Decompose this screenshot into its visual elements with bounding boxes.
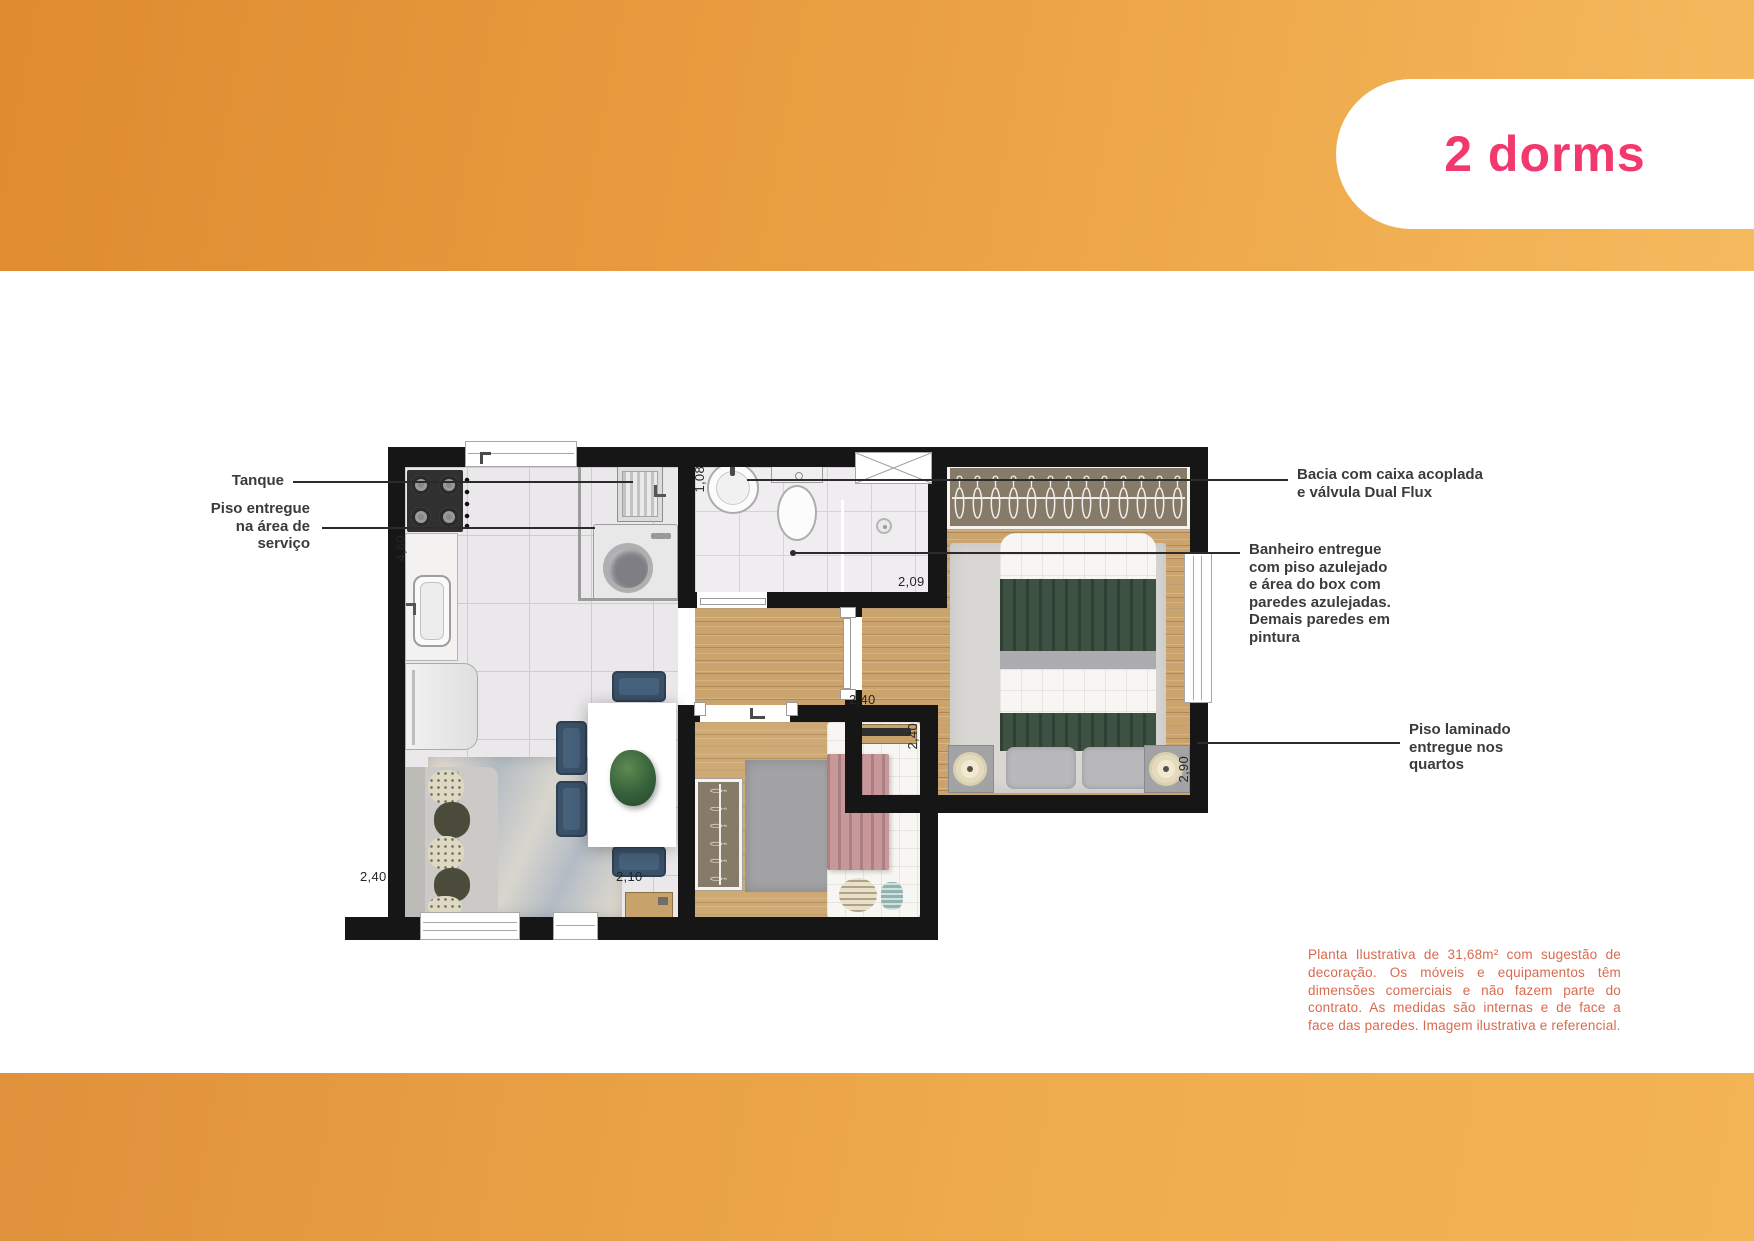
- burner-icon: [411, 475, 431, 495]
- label-line: Tanque: [140, 472, 284, 490]
- service-partition-h: [578, 598, 682, 601]
- kitchen-sink: [413, 575, 451, 647]
- duvet: [1000, 669, 1156, 715]
- window-frame-line: [423, 930, 517, 931]
- master-closet: [947, 465, 1190, 529]
- leader-tanque: [293, 481, 633, 483]
- label-piso-servico: Piso entreguena área deserviço: [128, 500, 310, 553]
- bed-pillow: [839, 878, 877, 912]
- bottom-orange-band: [0, 1073, 1754, 1241]
- laundry-tank: [617, 466, 663, 522]
- label-line: Bacia com caixa acoplada: [1297, 466, 1547, 484]
- kitchen-faucet-icon: [406, 603, 416, 615]
- drain-center: [883, 525, 887, 529]
- label-line: Piso laminado: [1409, 721, 1589, 739]
- stove: [407, 470, 463, 532]
- label-banheiro: Banheiro entreguecom piso azulejadoe áre…: [1249, 541, 1469, 646]
- label-line: paredes azulejadas.: [1249, 594, 1469, 612]
- chair-seat: [619, 853, 659, 870]
- chair-seat: [563, 728, 580, 768]
- dim-bedroom2-width: 2,10: [616, 869, 643, 884]
- bathroom-door-leaf: [700, 598, 766, 605]
- wall-bedroom2-right: [920, 705, 938, 940]
- shower-partition: [841, 500, 844, 592]
- sink-basin: [420, 582, 444, 640]
- leader-bacia: [747, 479, 1288, 481]
- label-line: Demais paredes em: [1249, 611, 1469, 629]
- toilet-bowl: [777, 485, 817, 541]
- label-line: Banheiro entregue: [1249, 541, 1469, 559]
- page: 2 dorms: [0, 0, 1754, 1241]
- burner-icon: [411, 507, 431, 527]
- window-frame-line: [556, 925, 595, 926]
- bedroom2-closet: [695, 779, 742, 890]
- label-line: e área do box com: [1249, 576, 1469, 594]
- lamp-center: [1163, 766, 1169, 772]
- bedroom2-rug: [745, 760, 834, 892]
- living-window: [420, 912, 520, 940]
- lamp-icon: [953, 752, 987, 786]
- label-bacia: Bacia com caixa acopladae válvula Dual F…: [1297, 466, 1547, 501]
- hanger-icon: [710, 854, 728, 867]
- hanger-icon: [710, 802, 728, 815]
- plant-icon: [610, 750, 656, 806]
- chair-seat: [619, 678, 659, 695]
- bed-pillow: [1082, 747, 1152, 789]
- door-jamb: [786, 702, 798, 716]
- window-frame-line: [1201, 556, 1202, 700]
- door-jamb: [840, 607, 856, 618]
- green-blanket-foot: [1000, 713, 1156, 751]
- burner-icon: [439, 507, 459, 527]
- fridge: [405, 663, 478, 750]
- leader-piso-laminado: [1197, 742, 1400, 744]
- hanger-icon: [710, 837, 728, 850]
- hanger-icon: [710, 819, 728, 832]
- desk-item: [658, 897, 668, 905]
- dining-chair: [556, 781, 587, 837]
- bedroom2-bed: [827, 722, 920, 918]
- bedroom2-door-opening: [700, 705, 790, 722]
- door-handle-icon: [750, 708, 765, 719]
- disclaimer-text: Planta Ilustrativa de 31,68m² com sugest…: [1308, 946, 1621, 1035]
- label-line: e válvula Dual Flux: [1297, 484, 1547, 502]
- tank-ridges: [622, 471, 658, 517]
- chair-seat: [563, 788, 580, 830]
- dim-bathroom-width: 1,08: [692, 466, 707, 493]
- hanger-icon: [710, 784, 728, 797]
- dim-bathroom-length: 2,09: [898, 574, 925, 589]
- label-line: Piso entregue: [128, 500, 310, 518]
- dim-master-width: 2,40: [849, 692, 876, 707]
- master-bed: [1000, 533, 1156, 793]
- label-line: serviço: [128, 535, 310, 553]
- sofa-back: [405, 767, 425, 917]
- dim-living-width: 2,40: [360, 869, 387, 884]
- master-door-leaf: [843, 618, 851, 689]
- dining-chair: [556, 721, 587, 775]
- wall-left: [388, 447, 405, 917]
- kitchen-window-faucet-icon: [480, 452, 491, 464]
- dim-master-depth: 2,90: [1176, 756, 1191, 783]
- dim-kitchen: 4,60: [393, 535, 408, 562]
- sink-inner: [716, 471, 750, 505]
- plan-type-badge: 2 dorms: [1336, 79, 1754, 229]
- door-jamb: [694, 702, 706, 716]
- label-line: pintura: [1249, 629, 1469, 647]
- hall-floor: [695, 608, 845, 705]
- living-window-2: [553, 912, 598, 940]
- burner-icon: [439, 475, 459, 495]
- badge-label: 2 dorms: [1444, 125, 1646, 183]
- label-piso-laminado: Piso laminadoentregue nosquartos: [1409, 721, 1589, 774]
- sideboard-desk: [625, 892, 673, 919]
- washing-machine: [593, 524, 678, 600]
- service-partition-v: [578, 467, 581, 600]
- wall-bedroom2-left: [678, 705, 695, 940]
- bed-pillow: [881, 882, 903, 910]
- label-line: na área de: [128, 518, 310, 536]
- wall-master-bottom: [845, 795, 1208, 813]
- closet-rail: [719, 784, 721, 885]
- leader-piso-servico: [322, 527, 595, 529]
- green-blanket: [1000, 579, 1156, 651]
- lamp-center: [967, 766, 973, 772]
- washer-door-icon: [603, 543, 653, 593]
- label-tanque: Tanque: [140, 472, 284, 490]
- leader-dot: [790, 550, 796, 556]
- bed-pillow: [1006, 747, 1076, 789]
- shower-drain-icon: [876, 518, 892, 534]
- sofa-pillow: [434, 802, 470, 838]
- leader-banheiro: [793, 552, 1240, 554]
- label-line: entregue nos: [1409, 739, 1589, 757]
- duvet-top: [1000, 533, 1156, 581]
- washer-controls: [651, 533, 671, 539]
- hanger-icon: [710, 872, 728, 885]
- master-window: [1184, 553, 1212, 703]
- tank-faucet-icon: [654, 485, 666, 497]
- window-frame-line: [1193, 556, 1194, 700]
- fridge-handle: [412, 670, 415, 745]
- sofa-pillow: [428, 836, 464, 870]
- label-line: com piso azulejado: [1249, 559, 1469, 577]
- window-frame-line: [423, 922, 517, 923]
- dim-bedroom2-depth: 2,40: [905, 723, 920, 750]
- dining-chair: [612, 671, 666, 702]
- closet-rail: [952, 497, 1185, 499]
- label-line: quartos: [1409, 756, 1589, 774]
- sofa-pillow: [428, 770, 464, 804]
- gray-throw: [1000, 651, 1156, 669]
